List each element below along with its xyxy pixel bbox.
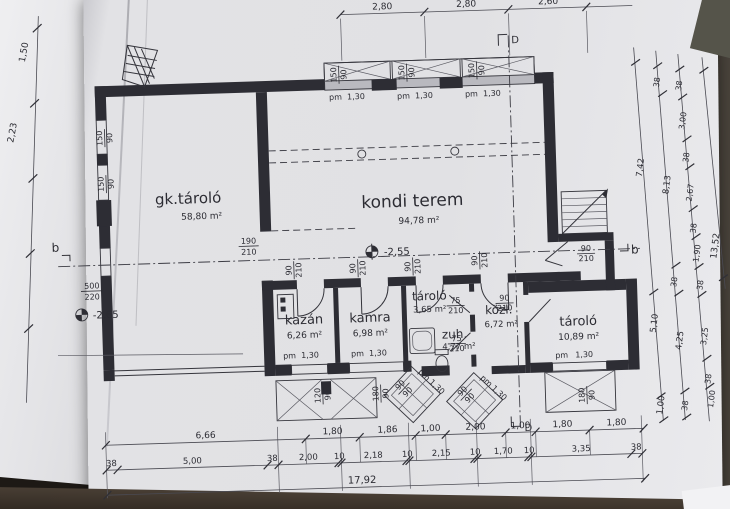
svg-text:38: 38 xyxy=(631,442,642,452)
level-marker-kondi: -2,55 xyxy=(366,243,410,260)
exterior-stair-hatch xyxy=(121,44,158,87)
svg-text:pm: pm xyxy=(283,351,296,360)
svg-text:38: 38 xyxy=(106,459,117,469)
svg-text:1,00: 1,00 xyxy=(706,390,717,409)
svg-text:1,30: 1,30 xyxy=(415,91,433,101)
svg-text:90: 90 xyxy=(499,293,509,302)
svg-text:5,10: 5,10 xyxy=(649,313,661,333)
svg-text:1,00: 1,00 xyxy=(510,421,531,432)
svg-text:1,30: 1,30 xyxy=(575,350,593,360)
room-area-kazan: 6,26 m² xyxy=(287,330,323,341)
svg-text:10: 10 xyxy=(470,447,481,457)
stairs xyxy=(561,188,609,233)
svg-text:38: 38 xyxy=(669,276,679,287)
svg-text:2,67: 2,67 xyxy=(685,183,696,202)
svg-text:90: 90 xyxy=(284,265,293,275)
door-90-label-kozl: 90 210 xyxy=(470,251,490,270)
svg-text:D: D xyxy=(511,35,519,46)
svg-text:1,90: 1,90 xyxy=(691,244,702,263)
svg-text:1,30: 1,30 xyxy=(369,348,387,358)
section-marker-b-right: b xyxy=(620,242,639,257)
svg-text:210: 210 xyxy=(480,252,489,268)
svg-text:5,00: 5,00 xyxy=(183,456,202,467)
svg-text:1,00: 1,00 xyxy=(655,395,667,415)
svg-text:210: 210 xyxy=(449,344,465,353)
svg-text:13,52: 13,52 xyxy=(709,233,722,260)
svg-text:2,80: 2,80 xyxy=(456,0,477,10)
svg-text:90: 90 xyxy=(323,390,332,400)
svg-text:150: 150 xyxy=(397,65,406,81)
svg-text:210: 210 xyxy=(497,303,513,312)
svg-text:90: 90 xyxy=(587,390,596,400)
svg-text:38: 38 xyxy=(681,152,691,163)
room-name-kazan: kazán xyxy=(285,312,324,328)
svg-text:2,00: 2,00 xyxy=(299,453,318,464)
door-90-label-stairs: 90 210 xyxy=(577,244,596,264)
window-150-label-2: 150 90 xyxy=(96,175,116,194)
svg-text:1,80: 1,80 xyxy=(322,427,343,438)
room-name-tarolo-kis: tároló xyxy=(412,288,447,303)
svg-text:4,25: 4,25 xyxy=(674,330,686,350)
svg-text:1,80: 1,80 xyxy=(552,420,573,431)
dimensions-top: 2,80 2,80 2,60 xyxy=(336,0,634,61)
svg-text:2,15: 2,15 xyxy=(432,448,451,459)
svg-text:6,66: 6,66 xyxy=(195,431,216,442)
svg-text:3,00: 3,00 xyxy=(677,111,688,130)
svg-text:17,92: 17,92 xyxy=(348,475,377,487)
svg-text:1,50: 1,50 xyxy=(18,41,31,63)
svg-text:210: 210 xyxy=(578,254,594,263)
svg-text:90: 90 xyxy=(106,179,115,189)
svg-text:1,86: 1,86 xyxy=(377,425,398,436)
svg-text:1,30: 1,30 xyxy=(301,350,319,360)
svg-text:210: 210 xyxy=(294,262,303,278)
svg-text:1,30: 1,30 xyxy=(483,89,501,99)
door-75-label-1: 75 210 xyxy=(446,296,465,316)
svg-text:38: 38 xyxy=(689,223,699,234)
window-90-label-bay2: 90 90 xyxy=(454,382,479,407)
svg-text:90: 90 xyxy=(470,255,479,265)
svg-text:8,13: 8,13 xyxy=(661,175,673,195)
room-area-tarolo-kis: 3,65 m² xyxy=(413,304,447,315)
svg-text:190: 190 xyxy=(241,236,257,245)
door-190-label: 190 210 xyxy=(238,236,259,257)
floor-plan-drawing: b b D D xyxy=(0,0,730,509)
svg-text:1,80: 1,80 xyxy=(606,418,627,429)
svg-text:38: 38 xyxy=(267,454,278,464)
svg-text:7,42: 7,42 xyxy=(635,158,647,178)
svg-text:150: 150 xyxy=(96,176,105,192)
garage-door-label: 500 220 xyxy=(81,281,104,302)
room-name-tarolo-nagy: tároló xyxy=(559,314,597,330)
room-area-kozl: 6,72 m² xyxy=(484,319,518,330)
svg-text:120: 120 xyxy=(313,388,322,404)
svg-text:1,70: 1,70 xyxy=(494,446,513,457)
svg-text:150: 150 xyxy=(95,130,104,146)
room-area-kondi-terem: 94,78 m² xyxy=(398,216,440,227)
svg-text:pm: pm xyxy=(329,93,342,102)
svg-text:2,00: 2,00 xyxy=(465,422,486,433)
svg-text:75: 75 xyxy=(451,334,461,343)
svg-text:150: 150 xyxy=(467,63,476,79)
svg-text:3,35: 3,35 xyxy=(572,444,591,455)
windows xyxy=(95,55,607,386)
floor-plan-photo: b b D D xyxy=(0,0,730,509)
svg-text:38: 38 xyxy=(674,80,684,91)
svg-text:10: 10 xyxy=(524,446,535,456)
svg-text:210: 210 xyxy=(358,260,367,276)
room-area-tarolo-nagy: 10,89 m² xyxy=(558,332,600,343)
svg-text:75: 75 xyxy=(450,296,460,305)
svg-text:180: 180 xyxy=(371,386,380,402)
svg-text:90: 90 xyxy=(381,388,390,398)
svg-text:2,80: 2,80 xyxy=(372,2,393,13)
svg-text:-2,65: -2,65 xyxy=(93,310,119,322)
window-180-label-tarolo: 180 90 xyxy=(577,386,597,405)
room-area-gk-tarolo: 58,80 m² xyxy=(181,211,223,222)
door-90-label-kazan: 90 210 xyxy=(284,261,304,280)
svg-text:220: 220 xyxy=(84,292,100,301)
window-180-label-kamra: 180 90 xyxy=(371,384,391,403)
svg-text:b: b xyxy=(631,242,639,256)
svg-text:pm: pm xyxy=(555,351,568,360)
svg-text:90: 90 xyxy=(339,69,348,79)
door-90-label-tarolo-nagy: 90 210 xyxy=(495,293,514,313)
dimensions-right: 7,42 5,10 1,00 38 8,13 38 4,25 38 38 3,0… xyxy=(631,45,730,424)
svg-text:90: 90 xyxy=(105,133,114,143)
svg-text:b: b xyxy=(51,241,59,255)
room-name-gk-tarolo: gk.tároló xyxy=(155,188,222,208)
svg-text:500: 500 xyxy=(84,281,100,290)
svg-text:38: 38 xyxy=(652,77,662,88)
svg-text:pm: pm xyxy=(465,89,478,98)
section-marker-b-left: b xyxy=(51,240,70,262)
svg-text:180: 180 xyxy=(577,387,586,403)
svg-text:1,30: 1,30 xyxy=(347,92,365,102)
svg-text:90: 90 xyxy=(407,67,416,77)
svg-text:1,00: 1,00 xyxy=(420,424,441,435)
svg-text:1,30: 1,30 xyxy=(427,378,446,397)
svg-text:-2,55: -2,55 xyxy=(384,247,410,259)
room-name-kondi-terem: kondi terem xyxy=(361,190,464,213)
svg-text:90: 90 xyxy=(477,65,486,75)
svg-text:2,23: 2,23 xyxy=(6,122,19,144)
svg-text:90: 90 xyxy=(403,261,412,271)
window-150-label-1: 150 90 xyxy=(95,129,115,148)
svg-text:pm: pm xyxy=(351,349,364,358)
room-area-kamra: 6,98 m² xyxy=(353,328,389,339)
dimensions-bottom: 6,66 1,80 1,86 1,00 2,00 1,00 1,80 1,80 xyxy=(101,415,649,499)
window-90-label-bay1: 90 90 xyxy=(392,376,417,401)
svg-text:10: 10 xyxy=(334,452,345,462)
room-name-kamra: kamra xyxy=(349,310,391,326)
svg-text:2,18: 2,18 xyxy=(364,451,383,462)
svg-text:210: 210 xyxy=(241,247,257,256)
room-labels: gk.tároló 58,80 m² kondi terem 94,78 m² … xyxy=(155,177,600,362)
shower-tray xyxy=(409,328,435,354)
door-90-label-kamra: 90 210 xyxy=(348,259,368,278)
svg-text:150: 150 xyxy=(329,67,338,83)
level-marker-garage: -2,65 xyxy=(76,308,119,322)
svg-text:90: 90 xyxy=(348,263,357,273)
svg-text:210: 210 xyxy=(448,306,464,315)
svg-text:38: 38 xyxy=(703,373,713,384)
svg-text:10: 10 xyxy=(402,450,413,460)
svg-text:38: 38 xyxy=(680,400,690,411)
svg-text:210: 210 xyxy=(413,259,422,275)
svg-text:3,25: 3,25 xyxy=(699,327,710,346)
svg-text:38: 38 xyxy=(695,279,705,290)
door-90-label-tarolo-kis: 90 210 xyxy=(403,257,423,276)
svg-text:1,30: 1,30 xyxy=(489,384,508,403)
svg-text:pm: pm xyxy=(397,92,410,101)
svg-text:90: 90 xyxy=(581,244,591,253)
svg-text:2,60: 2,60 xyxy=(538,0,559,7)
